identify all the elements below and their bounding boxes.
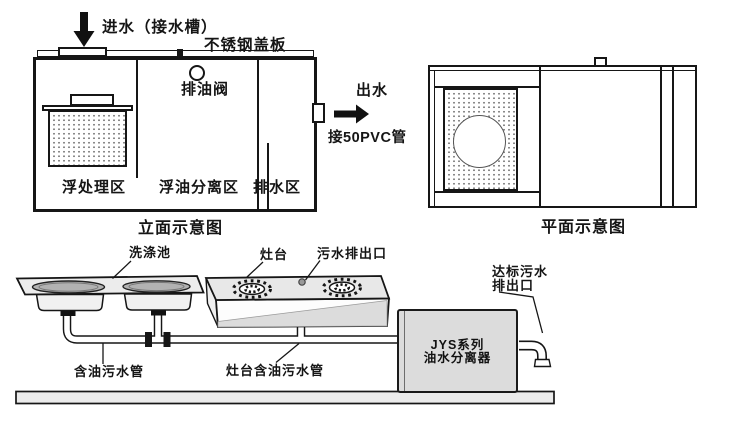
stove-label: 灶台 (260, 248, 288, 262)
inflow-arrow-icon (74, 12, 95, 47)
plan-title: 平面示意图 (541, 219, 626, 237)
sink-drain (151, 310, 166, 316)
plan-circle (453, 115, 506, 168)
sink-basin (125, 294, 192, 310)
sewage-outlet-dot (299, 279, 305, 285)
pipe-flange (145, 332, 152, 347)
inflow-label: 进水（接水槽） (102, 19, 218, 36)
oily-pipe-label: 含油污水管 (74, 365, 144, 379)
stove-outlet-label: 污水排出口 (317, 247, 387, 261)
oil-water-separator-diagram: 进水（接水槽） 不锈钢盖板 排油阀 浮处理区 浮油分离区 排水区 立面示意图 出… (0, 0, 746, 445)
outlet-nub (312, 103, 325, 123)
outflow-arrow-icon (334, 105, 369, 124)
outflow-pipe-label: 接50PVC管 (328, 131, 406, 147)
separator-box-edge (404, 311, 405, 391)
outflow-label: 出水 (356, 83, 388, 100)
cover-label: 不锈钢盖板 (204, 37, 287, 54)
sink-basin (37, 295, 104, 311)
floor-line (16, 392, 554, 404)
oil-valve-circle (189, 65, 205, 81)
zone-drainage-label: 排水区 (253, 180, 301, 197)
sink-drain (61, 311, 76, 317)
plan-top-nub (594, 57, 607, 67)
stove-oily-pipe-label: 灶台含油污水管 (226, 364, 324, 378)
baffle-wall (136, 60, 138, 178)
plan-outlet-wall (672, 67, 674, 206)
plan-outlet-wall (660, 67, 662, 206)
plan-inner-left-wall (434, 70, 435, 207)
zone-oil-separation-label: 浮油分离区 (159, 180, 239, 197)
plan-inner-top-wall (430, 70, 695, 71)
separator-box: JYS系列 油水分离器 (397, 309, 518, 393)
discharge-label-line1: 达标污水 (492, 265, 548, 279)
filter-basket (48, 110, 127, 167)
inlet-trough (58, 47, 107, 57)
discharge-pipe-mouth (535, 360, 551, 367)
lid-tick (177, 49, 183, 57)
discharge-label: 达标污水 排出口 (492, 265, 548, 294)
standpipe (267, 143, 269, 210)
plan-divider (539, 67, 541, 206)
sink-label: 洗涤池 (129, 246, 171, 260)
separator-name-line2: 油水分离器 (399, 352, 516, 365)
oil-valve-label: 排油阀 (181, 82, 229, 99)
zone-float-treatment-label: 浮处理区 (62, 180, 126, 197)
elevation-title: 立面示意图 (138, 220, 223, 238)
discharge-label-line2: 排出口 (492, 279, 548, 293)
pipe-flange (164, 332, 171, 347)
